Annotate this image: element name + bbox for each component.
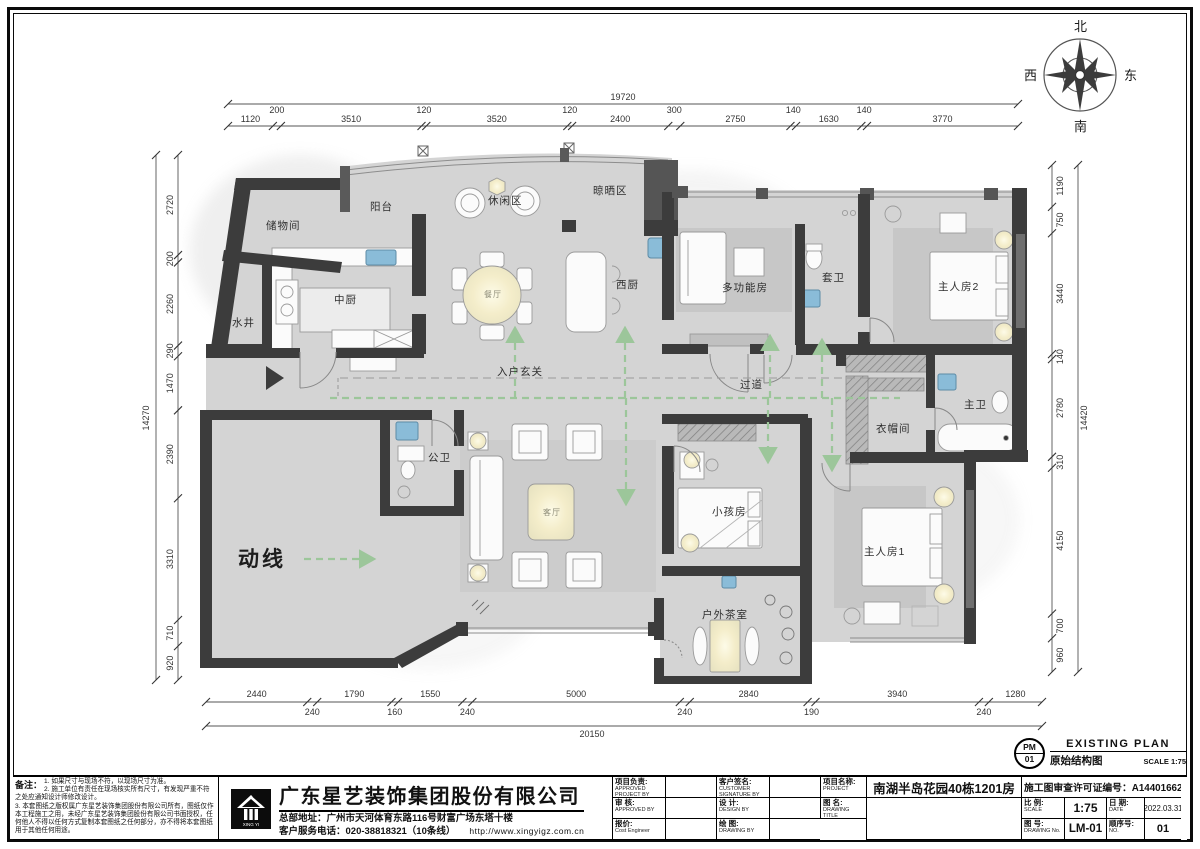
svg-text:140: 140	[1055, 349, 1065, 364]
svg-text:14270: 14270	[141, 405, 151, 430]
room-label-master-bath: 主卫	[964, 399, 987, 411]
field-approved-project: 项目负责: APPROVED PROJECT BY	[612, 777, 665, 798]
svg-text:710: 710	[165, 626, 175, 641]
room-label-tea: 户外茶室	[702, 608, 748, 621]
field-project-label: 项目名称: PROJECT	[820, 777, 866, 798]
svg-text:3940: 3940	[887, 689, 907, 699]
room-label-leisure: 休闲区	[488, 194, 523, 207]
svg-text:140: 140	[857, 105, 872, 115]
svg-text:2390: 2390	[165, 444, 175, 464]
room-label-kitchen-cn: 中厨	[334, 293, 357, 306]
notes-label: 备注：	[15, 778, 42, 791]
svg-text:1190: 1190	[1055, 176, 1065, 195]
field-date-value: 2022.03.31	[1144, 798, 1181, 819]
field-design: 设 计: DESIGN BY	[716, 798, 769, 819]
room-label-closet: 衣帽间	[876, 422, 911, 435]
field-customer-signature-value	[769, 777, 820, 798]
company-website: http://www.xingyigz.com.cn	[469, 825, 584, 838]
svg-text:240: 240	[976, 707, 991, 717]
svg-text:2780: 2780	[1055, 398, 1065, 418]
room-label-corridor: 过道	[740, 378, 763, 391]
room-label-living: 客厅	[543, 507, 561, 517]
field-drawing-no-value: LM-01	[1064, 819, 1106, 840]
svg-text:3770: 3770	[932, 114, 952, 124]
compass-west-label: 西	[1024, 68, 1037, 83]
svg-text:1120: 1120	[241, 114, 260, 124]
field-drawing-no: 图 号: DRAWING No.	[1021, 819, 1064, 840]
room-label-guest-bath: 公卫	[428, 452, 451, 464]
svg-text:1280: 1280	[1005, 689, 1025, 699]
field-project-value: 南湖半岛花园40栋1201房	[866, 777, 1021, 798]
svg-text:120: 120	[416, 105, 431, 115]
svg-text:140: 140	[786, 105, 801, 115]
room-label-balcony: 阳台	[370, 200, 393, 213]
field-date: 日 期: DATE	[1106, 798, 1144, 819]
circulation-legend-label: 动线	[238, 547, 286, 571]
field-approved-project-value	[665, 777, 716, 798]
field-approved: 审 核: APPROVED BY	[612, 798, 665, 819]
note-line: 2. 施工单位有责任在现场核实所有尺寸，有发现严重不符之处应通知设计师修改设计。	[15, 786, 216, 802]
room-label-master2: 主人房2	[938, 280, 979, 293]
plan-stamp: PM 01 EXISTING PLAN 原始结构图 SCALE 1:75	[1014, 733, 1186, 773]
plan-scale: SCALE 1:75	[1143, 757, 1186, 766]
company-box: XING YI 广东星艺装饰集团股份有限公司 总部地址：广州市天河体育东路116…	[218, 777, 612, 840]
note-line: 1. 如果尺寸与现场不符，以现场尺寸为准。	[15, 778, 216, 786]
field-seq-no: 顺序号: NO.	[1106, 819, 1144, 840]
svg-text:290: 290	[165, 343, 175, 358]
plan-stamp-bubble: PM 01	[1014, 738, 1045, 769]
svg-text:2440: 2440	[247, 689, 267, 699]
svg-text:310: 310	[1055, 455, 1065, 470]
svg-text:750: 750	[1055, 213, 1065, 228]
svg-text:700: 700	[1055, 618, 1065, 633]
field-customer-signature: 客户签名: CUSTOMER SIGNATURE BY	[716, 777, 769, 798]
svg-text:2720: 2720	[165, 195, 175, 215]
svg-text:190: 190	[804, 707, 819, 717]
svg-text:1470: 1470	[165, 373, 175, 393]
svg-text:1630: 1630	[819, 114, 839, 124]
svg-text:20150: 20150	[579, 729, 604, 739]
svg-text:920: 920	[165, 656, 175, 671]
room-label-dining: 餐厅	[484, 290, 502, 299]
field-cost: 报价: Cost Engineer	[612, 819, 665, 840]
notes-box: 备注： 1. 如果尺寸与现场不符，以现场尺寸为准。 2. 施工单位有责任在现场核…	[13, 777, 218, 840]
svg-text:200: 200	[165, 251, 175, 266]
svg-text:240: 240	[305, 707, 320, 717]
field-cost-value	[665, 819, 716, 840]
svg-text:3510: 3510	[341, 114, 361, 124]
svg-text:14420: 14420	[1079, 405, 1089, 430]
svg-text:3310: 3310	[165, 549, 175, 569]
room-label-ensuite: 套卫	[822, 271, 845, 284]
field-drawing-by-value	[769, 819, 820, 840]
room-label-multi: 多功能房	[722, 281, 768, 294]
plan-title-cn: 原始结构图	[1050, 753, 1103, 768]
field-approved-value	[665, 798, 716, 819]
room-label-kitchen-w: 西厨	[616, 279, 639, 291]
field-drawing-by: 绘 图: DRAWING BY	[716, 819, 769, 840]
svg-text:240: 240	[677, 707, 692, 717]
svg-text:2840: 2840	[739, 689, 759, 699]
svg-text:1790: 1790	[344, 689, 364, 699]
compass-east-label: 东	[1124, 68, 1137, 83]
room-label-storage: 储物间	[266, 219, 301, 232]
company-name: 广东星艺装饰集团股份有限公司	[279, 780, 584, 812]
room-label-drying: 晾晒区	[593, 184, 628, 197]
field-scale: 比 例: SCALE	[1021, 798, 1064, 819]
svg-text:4150: 4150	[1055, 531, 1065, 551]
room-label-foyer: 入户玄关	[497, 365, 543, 378]
company-phone: 客户服务电话：020-38818321（10条线）	[279, 826, 455, 837]
field-scale-value: 1:75	[1064, 798, 1106, 819]
field-seq-no-value: 01	[1144, 819, 1181, 840]
svg-text:XING YI: XING YI	[243, 822, 259, 827]
field-design-value	[769, 798, 820, 819]
svg-text:200: 200	[269, 105, 284, 115]
svg-text:2260: 2260	[165, 294, 175, 314]
plan-stamp-code-top: PM	[1016, 742, 1043, 753]
svg-text:240: 240	[460, 707, 475, 717]
room-label-well: 水井	[232, 316, 255, 329]
compass-icon: 北 南 西 东	[1024, 19, 1137, 134]
compass-south-label: 南	[1074, 119, 1087, 134]
room-label-master1: 主人房1	[864, 545, 905, 558]
svg-text:300: 300	[667, 105, 682, 115]
room-label-kids: 小孩房	[712, 505, 747, 518]
field-permit: 施工图审查许可证编号：A144016621(甲级)	[1021, 777, 1181, 798]
drawing-sheet: 动线 储物间 水井 阳台 休闲区 晾晒区 中厨 西厨 餐厅 多功能房 套卫 主人…	[0, 0, 1200, 849]
svg-text:960: 960	[1055, 648, 1065, 663]
field-drawing-title: 图 名: DRAWING TITLE	[820, 798, 866, 819]
company-logo-icon: XING YI	[231, 789, 271, 829]
plan-stamp-code-bottom: 01	[1016, 753, 1043, 765]
svg-text:5000: 5000	[566, 689, 586, 699]
svg-text:120: 120	[562, 105, 577, 115]
compass-north-label: 北	[1074, 19, 1087, 34]
svg-text:19720: 19720	[610, 92, 635, 102]
note-line: 3. 本套图纸之版权属广东星艺装饰集团股份有限公司所有，图纸仅作本工程施工之用，…	[15, 803, 216, 836]
company-address: 总部地址：广州市天河体育东路116号财富广场东塔十楼	[279, 812, 584, 825]
svg-text:3520: 3520	[487, 114, 507, 124]
svg-text:3440: 3440	[1055, 284, 1065, 304]
plan-title-en: EXISTING PLAN	[1050, 738, 1186, 752]
title-block: 备注： 1. 如果尺寸与现场不符，以现场尺寸为准。 2. 施工单位有责任在现场核…	[13, 775, 1187, 840]
field-drawing-title-value	[866, 798, 1021, 840]
svg-text:160: 160	[387, 707, 402, 717]
svg-text:2750: 2750	[725, 114, 745, 124]
svg-text:1550: 1550	[420, 689, 440, 699]
floor-plan-svg: 动线 储物间 水井 阳台 休闲区 晾晒区 中厨 西厨 餐厅 多功能房 套卫 主人…	[0, 0, 1200, 775]
svg-text:2400: 2400	[610, 114, 630, 124]
